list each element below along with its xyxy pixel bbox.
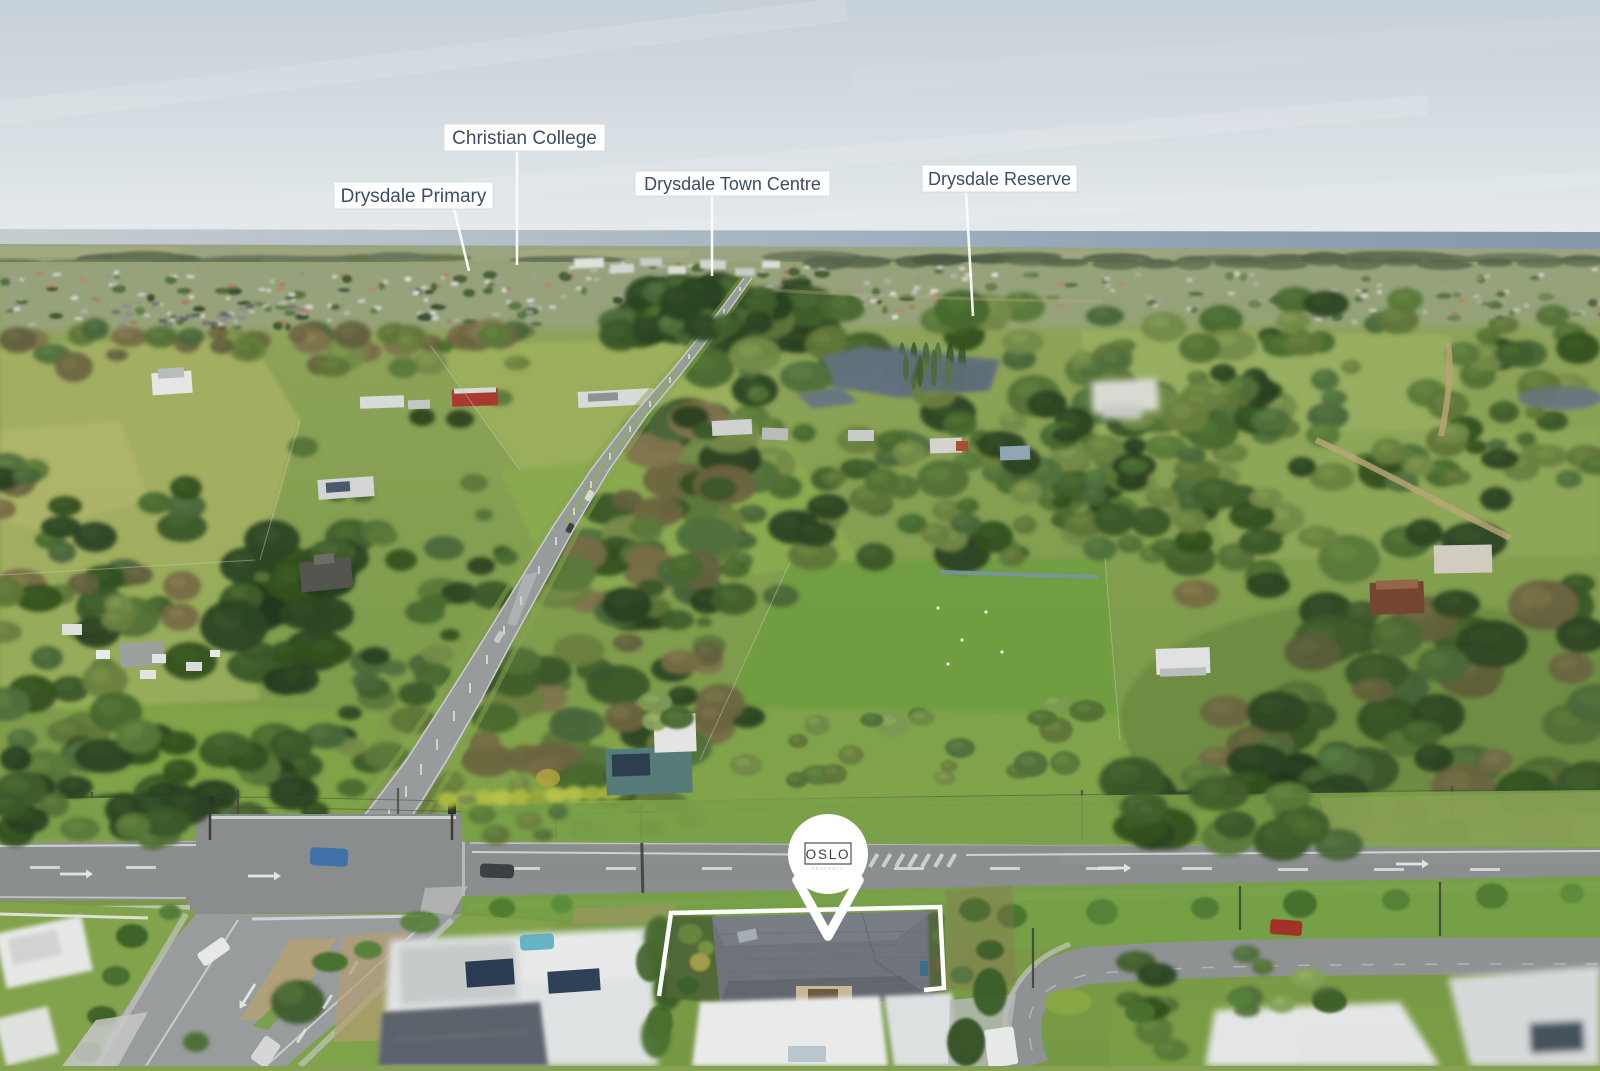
- svg-text:Christian College: Christian College: [452, 128, 597, 149]
- svg-text:Drysdale Primary: Drysdale Primary: [341, 186, 487, 207]
- svg-text:Drysdale Reserve: Drysdale Reserve: [928, 169, 1071, 189]
- svg-text:Drysdale Town Centre: Drysdale Town Centre: [644, 174, 821, 194]
- svg-text:OSLO: OSLO: [806, 847, 851, 862]
- svg-text:PROPERTY: PROPERTY: [812, 866, 844, 871]
